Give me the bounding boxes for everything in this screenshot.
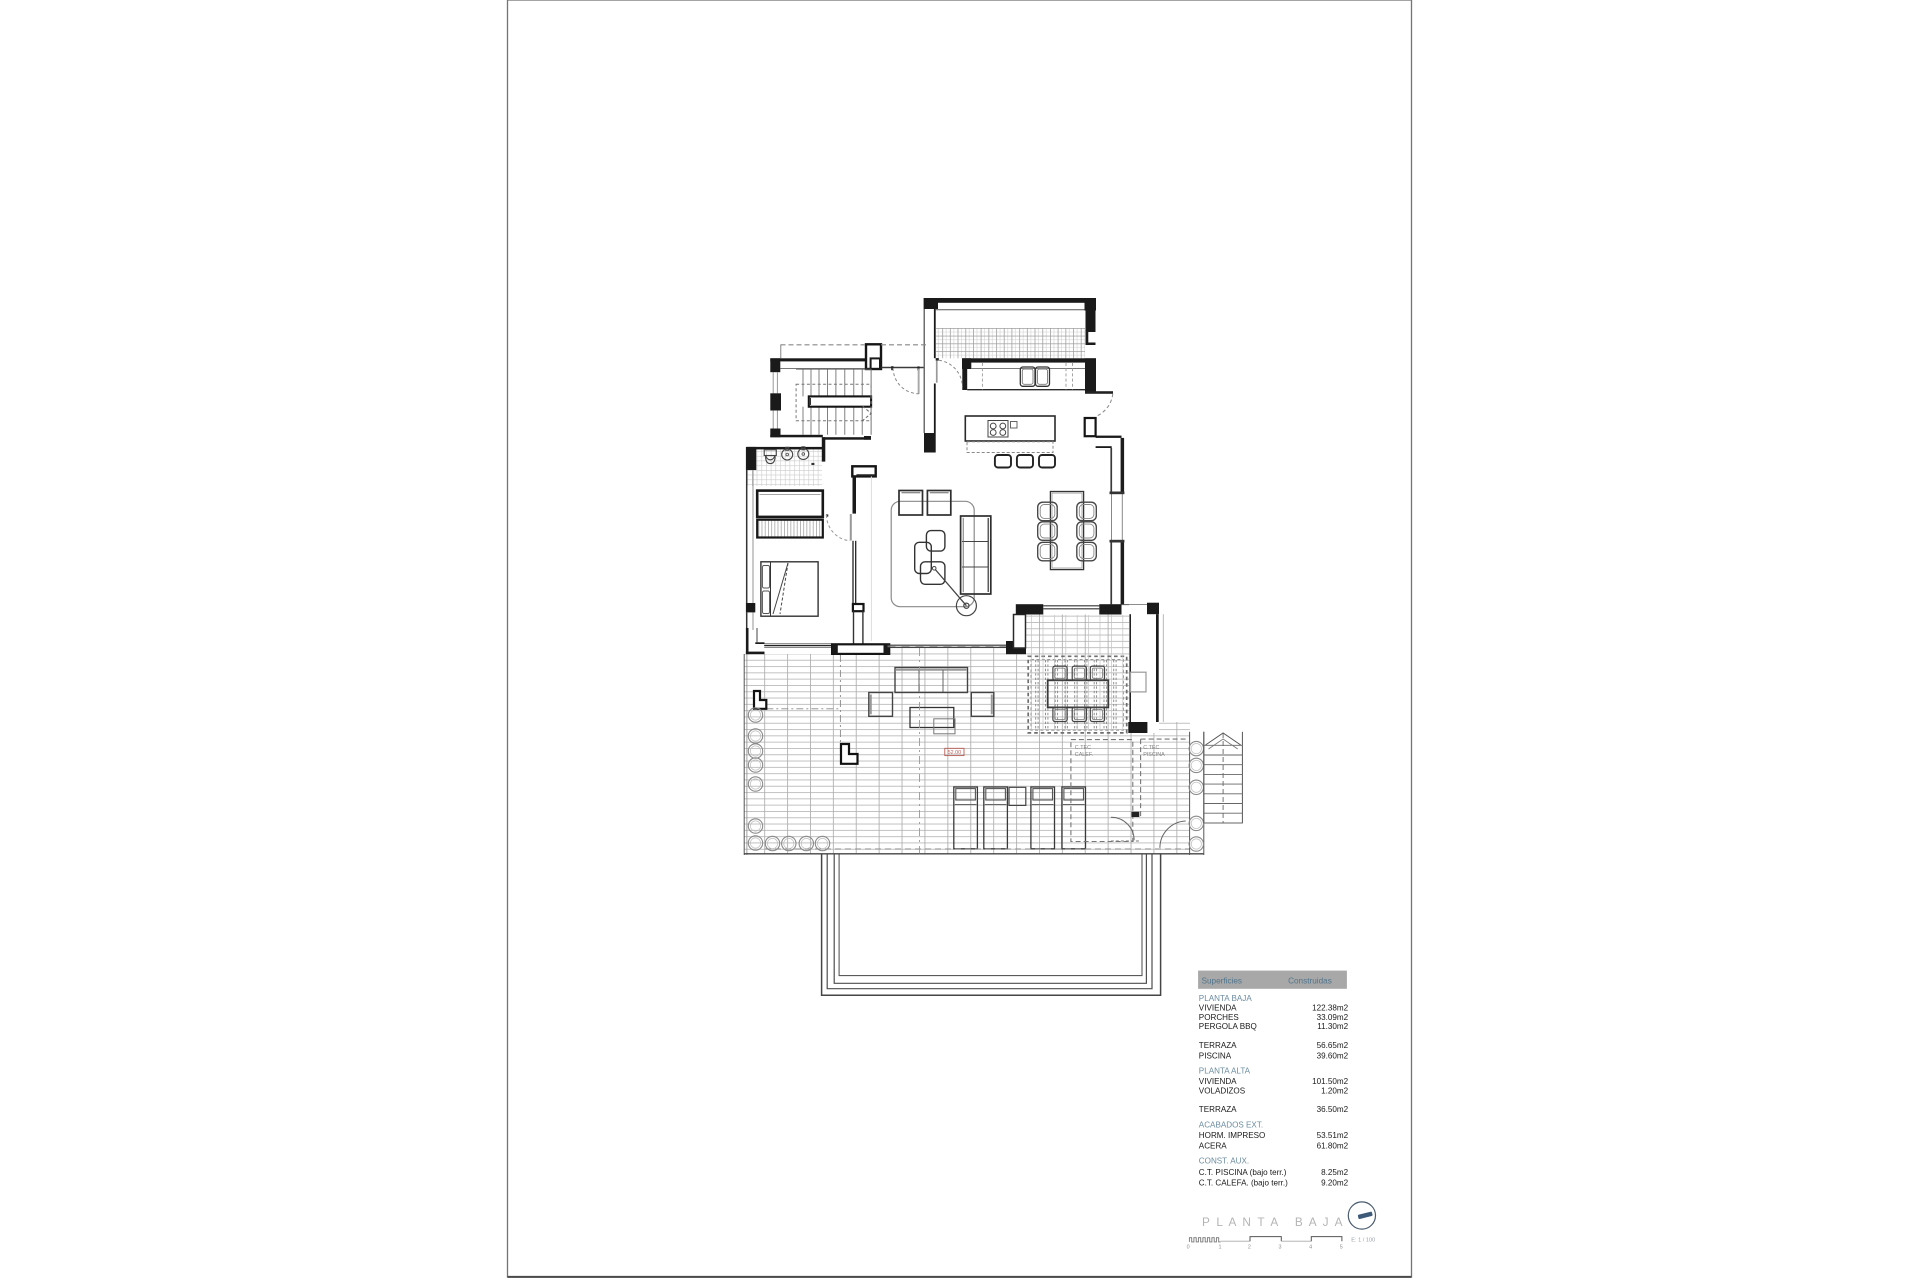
svg-text:52.00: 52.00 — [948, 750, 962, 756]
svg-text:PERGOLA BBQ: PERGOLA BBQ — [1199, 1022, 1257, 1031]
svg-text:2: 2 — [1248, 1244, 1251, 1250]
svg-text:11.30m2: 11.30m2 — [1317, 1022, 1348, 1031]
svg-text:101.50m2: 101.50m2 — [1312, 1077, 1348, 1086]
svg-text:4: 4 — [1309, 1244, 1312, 1250]
svg-text:PLANTA ALTA: PLANTA ALTA — [1199, 1066, 1251, 1075]
svg-text:9.20m2: 9.20m2 — [1321, 1178, 1348, 1187]
svg-text:33.09m2: 33.09m2 — [1317, 1013, 1349, 1022]
svg-text:5: 5 — [1340, 1244, 1343, 1250]
svg-text:122.38m2: 122.38m2 — [1312, 1003, 1348, 1012]
svg-text:VIVIENDA: VIVIENDA — [1199, 1003, 1237, 1012]
svg-text:CALEF.: CALEF. — [1075, 752, 1093, 758]
svg-text:PLANTA BAJA: PLANTA BAJA — [1199, 994, 1253, 1003]
svg-text:TERRAZA: TERRAZA — [1199, 1041, 1237, 1050]
svg-text:TERRAZA: TERRAZA — [1199, 1105, 1237, 1114]
svg-text:ACERA: ACERA — [1199, 1141, 1227, 1150]
svg-text:PORCHES: PORCHES — [1199, 1013, 1240, 1022]
svg-text:VIVIENDA: VIVIENDA — [1199, 1077, 1237, 1086]
svg-text:PISCINA: PISCINA — [1199, 1052, 1232, 1061]
svg-text:Construidas: Construidas — [1288, 976, 1332, 985]
svg-text:VOLADIZOS: VOLADIZOS — [1199, 1086, 1246, 1095]
svg-text:CONST. AUX.: CONST. AUX. — [1199, 1157, 1249, 1166]
svg-text:39.60m2: 39.60m2 — [1317, 1052, 1349, 1061]
svg-text:Superficies: Superficies — [1202, 976, 1243, 985]
svg-text:36.50m2: 36.50m2 — [1317, 1105, 1349, 1114]
svg-text:53.51m2: 53.51m2 — [1317, 1131, 1349, 1140]
svg-text:HORM. IMPRESO: HORM. IMPRESO — [1199, 1131, 1266, 1140]
svg-text:3: 3 — [1279, 1244, 1282, 1250]
svg-text:PISCINA: PISCINA — [1143, 752, 1165, 758]
svg-text:C.TEC: C.TEC — [1143, 745, 1159, 751]
svg-text:1: 1 — [1219, 1244, 1222, 1250]
svg-text:E: 1 / 100: E: 1 / 100 — [1351, 1238, 1375, 1244]
svg-text:1.20m2: 1.20m2 — [1321, 1086, 1348, 1095]
svg-text:P L A N T A B A J A: P L A N T A B A J A — [1202, 1215, 1344, 1229]
svg-text:0: 0 — [1187, 1244, 1190, 1250]
svg-text:56.65m2: 56.65m2 — [1317, 1041, 1349, 1050]
svg-text:C.T. CALEFA. (bajo terr.): C.T. CALEFA. (bajo terr.) — [1199, 1178, 1288, 1187]
svg-text:C.T. PISCINA (bajo terr.): C.T. PISCINA (bajo terr.) — [1199, 1168, 1287, 1177]
svg-text:ACABADOS EXT.: ACABADOS EXT. — [1199, 1120, 1263, 1129]
svg-text:8.25m2: 8.25m2 — [1321, 1168, 1348, 1177]
svg-text:C.TEC: C.TEC — [1075, 745, 1091, 751]
svg-text:61.80m2: 61.80m2 — [1317, 1141, 1349, 1150]
